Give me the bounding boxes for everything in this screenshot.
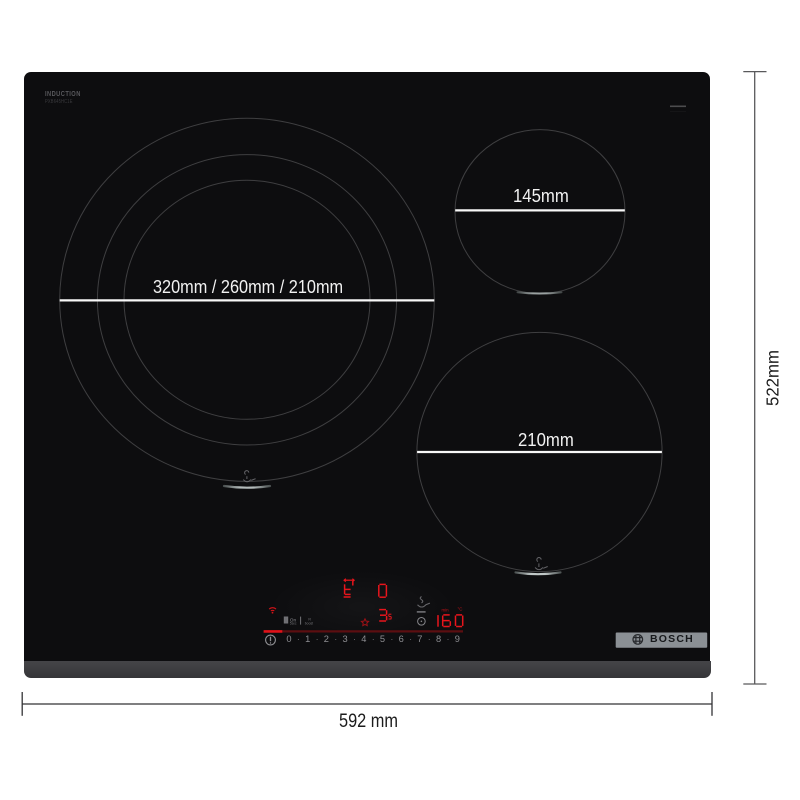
svg-text:boost: boost	[305, 622, 313, 626]
svg-text:min: min	[442, 607, 450, 612]
svg-text:5sec: 5sec	[290, 621, 297, 625]
svg-text:°C: °C	[458, 607, 463, 612]
